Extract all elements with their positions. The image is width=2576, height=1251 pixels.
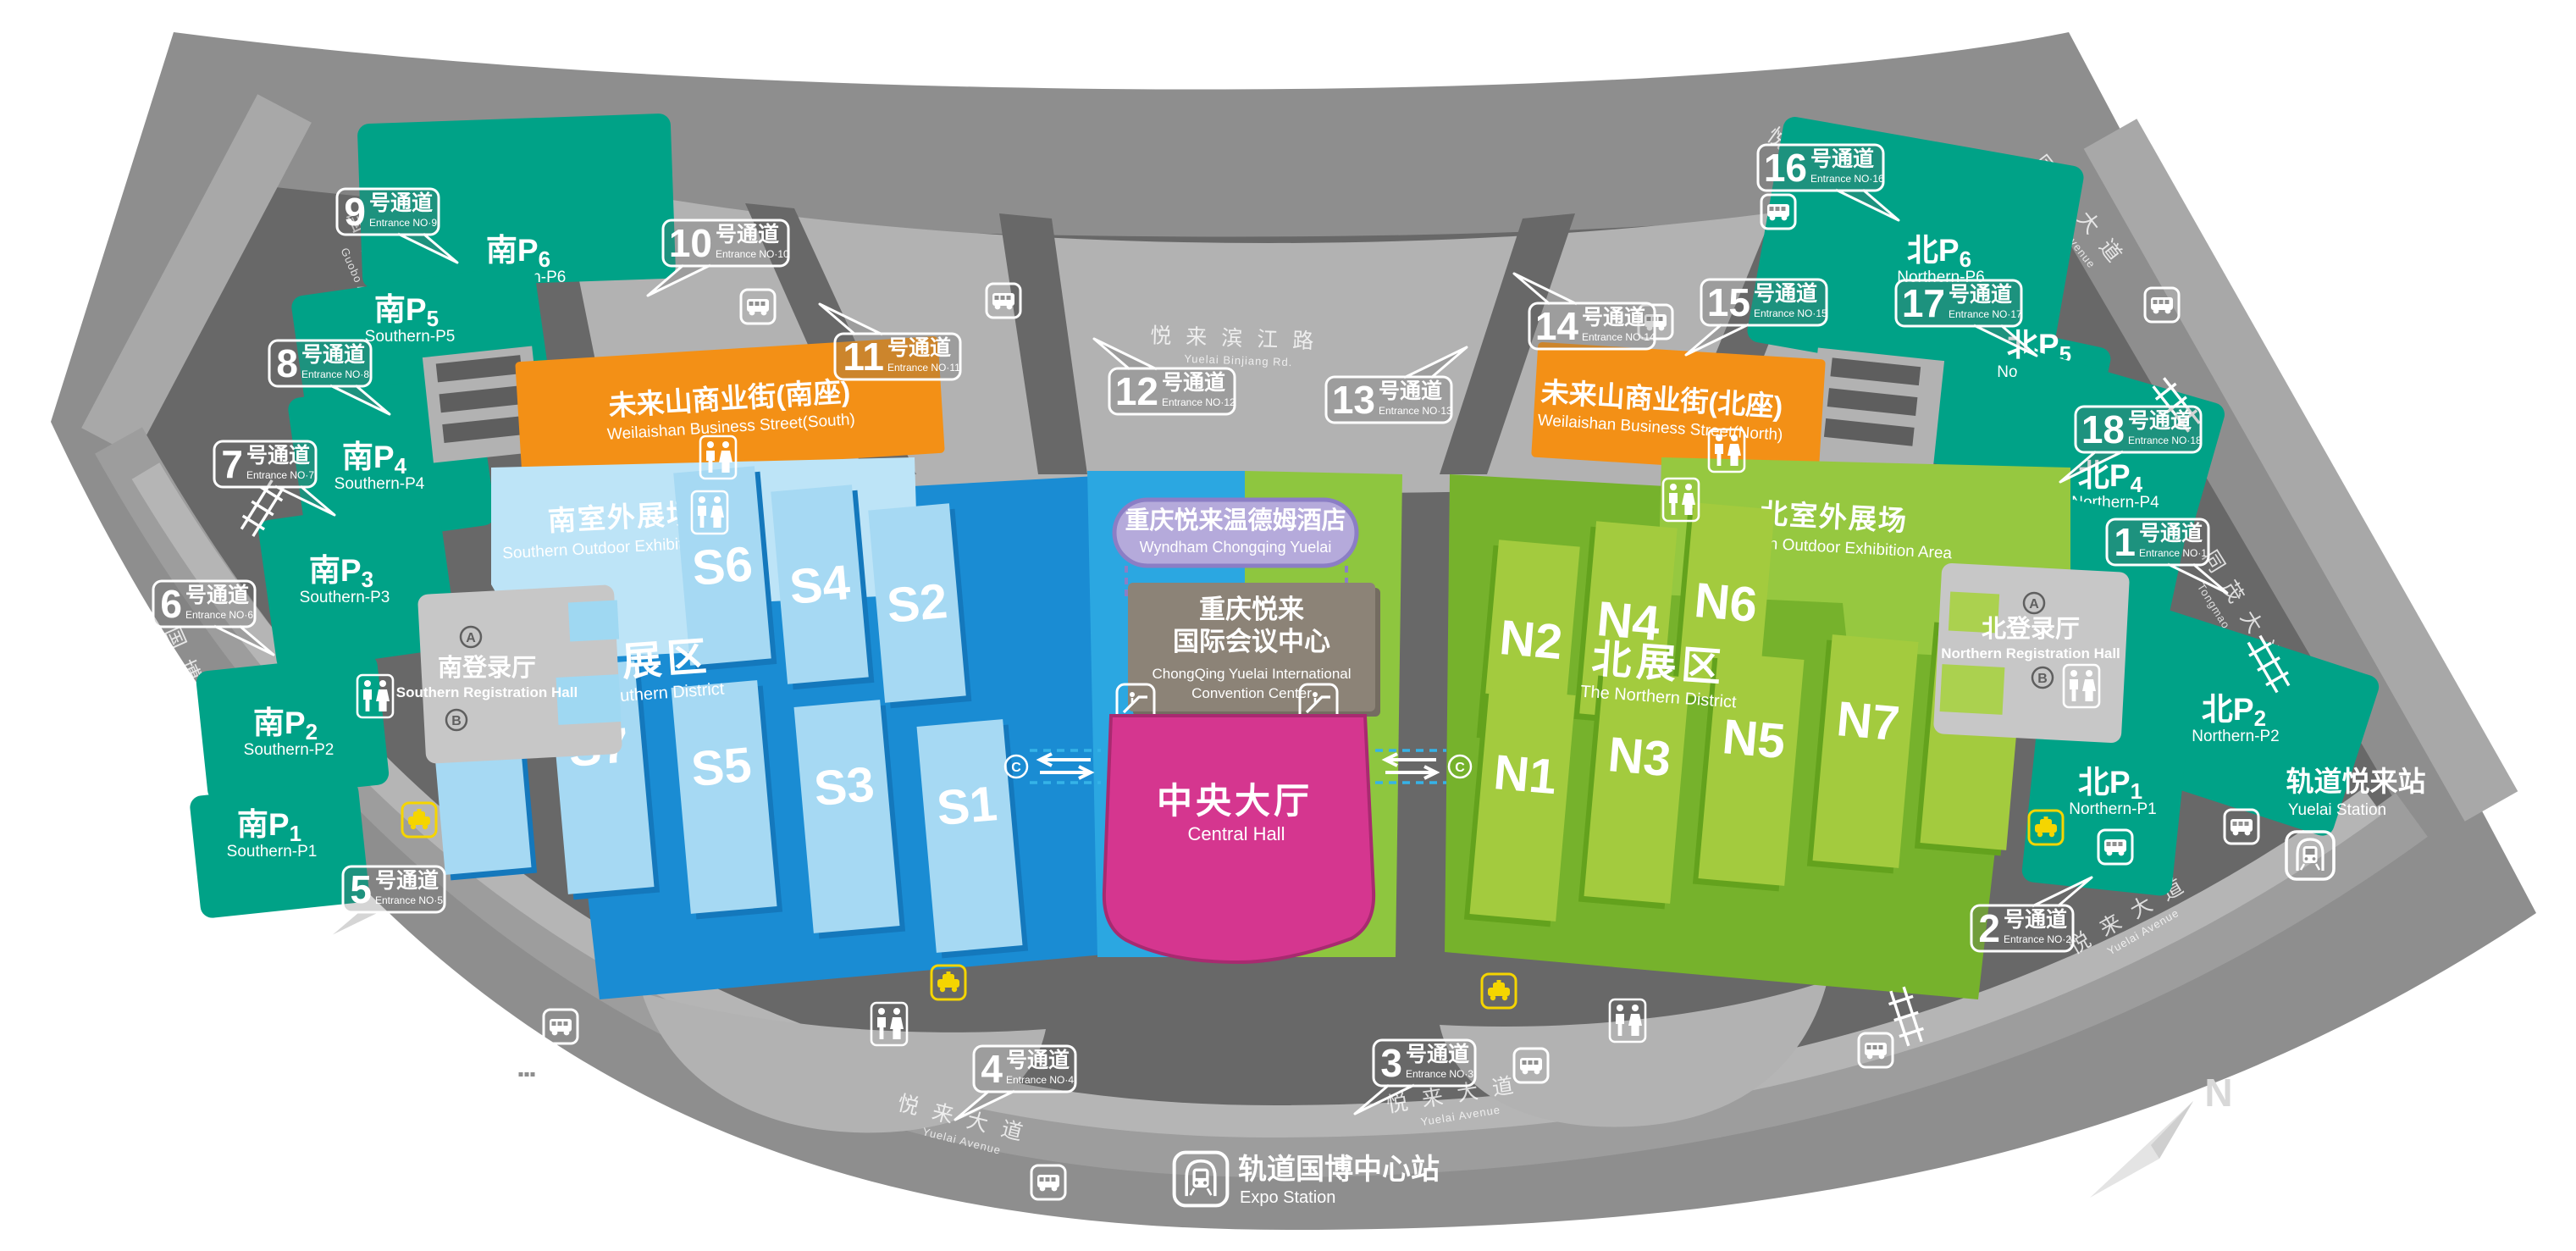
svg-text:号通道: 号通道 <box>716 222 779 246</box>
svg-text:Entrance NO·7: Entrance NO·7 <box>246 469 314 481</box>
svg-text:轨道国博中心站: 轨道国博中心站 <box>1238 1154 1440 1186</box>
svg-text:号通道: 号通道 <box>2139 521 2203 545</box>
hall-s4: S4 <box>771 484 874 690</box>
svg-text:3: 3 <box>1380 1041 1402 1085</box>
svg-text:号通道: 号通道 <box>1810 147 1874 171</box>
svg-text:ChongQing Yuelai International: ChongQing Yuelai International <box>1152 666 1351 682</box>
south-registration-label-en: Southern Registration Hall <box>396 684 578 700</box>
svg-text:国际会议中心: 国际会议中心 <box>1173 627 1330 656</box>
hotel-label-en: Wyndham Chongqing Yuelai <box>1140 539 1332 556</box>
svg-text:Entrance NO·15: Entrance NO·15 <box>1754 307 1827 319</box>
svg-text:Entrance NO·9: Entrance NO·9 <box>369 217 437 229</box>
svg-text:B: B <box>451 714 462 728</box>
svg-text:Entrance NO·16: Entrance NO·16 <box>1810 173 1884 185</box>
svg-text:Expo Station: Expo Station <box>1240 1188 1335 1207</box>
svg-text:N6: N6 <box>1692 573 1760 633</box>
svg-text:Entrance NO·13: Entrance NO·13 <box>1379 405 1452 417</box>
svg-text:Southern-P5: Southern-P5 <box>365 328 456 346</box>
svg-text:Entrance NO·4: Entrance NO·4 <box>1006 1074 1074 1086</box>
svg-text:Entrance NO·11: Entrance NO·11 <box>887 362 960 374</box>
hotel-label: 重庆悦来温德姆酒店 <box>1125 506 1346 534</box>
svg-text:号通道: 号通道 <box>369 191 433 215</box>
central-hall-label: 中央大厅 <box>1157 781 1313 821</box>
compass-arrow-shade <box>2151 1101 2193 1159</box>
svg-text:7: 7 <box>221 442 243 486</box>
parking-north-p1: 北P1 Northern-P1 <box>2020 719 2187 897</box>
svg-text:号通道: 号通道 <box>1949 282 2012 307</box>
svg-text:Entrance NO·1: Entrance NO·1 <box>2139 547 2207 559</box>
svg-text:Southern-P1: Southern-P1 <box>227 843 318 861</box>
svg-text:号通道: 号通道 <box>887 335 951 360</box>
svg-text:11: 11 <box>843 335 884 379</box>
svg-text:Entrance NO·8: Entrance NO·8 <box>301 368 369 380</box>
north-district-label: 北展区 <box>1590 636 1727 690</box>
svg-text:N7: N7 <box>1834 691 1902 751</box>
svg-text:S6: S6 <box>690 536 755 596</box>
svg-text:S1: S1 <box>935 776 999 836</box>
north-registration-label-en: Northern Registration Hall <box>1941 645 2120 661</box>
compass-n-label: N <box>2204 1071 2232 1115</box>
svg-text:号通道: 号通道 <box>1162 370 1225 395</box>
svg-text:A: A <box>466 631 476 645</box>
svg-text:N5: N5 <box>1720 709 1788 769</box>
svg-text:Yuelai Station: Yuelai Station <box>2288 801 2386 819</box>
svg-text:轨道悦来站: 轨道悦来站 <box>2286 766 2426 797</box>
svg-text:13: 13 <box>1332 378 1375 422</box>
svg-text:Southern-P4: Southern-P4 <box>334 475 425 493</box>
svg-text:Entrance NO·5: Entrance NO·5 <box>375 894 443 906</box>
north-registration-label: 北登录厅 <box>1982 615 2080 643</box>
svg-text:重庆悦来: 重庆悦来 <box>1199 595 1304 624</box>
svg-text:号通道: 号通道 <box>1582 305 1645 329</box>
svg-text:号通道: 号通道 <box>1379 379 1442 403</box>
svg-text:Northern-P2: Northern-P2 <box>2192 728 2280 745</box>
svg-text:S3: S3 <box>812 756 876 816</box>
svg-text:S2: S2 <box>885 573 949 634</box>
svg-text:号通道: 号通道 <box>2128 408 2192 433</box>
svg-text:4: 4 <box>981 1047 1003 1091</box>
svg-text:号通道: 号通道 <box>1006 1048 1070 1072</box>
svg-text:Southern-P3: Southern-P3 <box>300 589 390 606</box>
svg-text:C: C <box>1011 761 1021 775</box>
svg-text:Entrance NO·17: Entrance NO·17 <box>1949 308 2022 320</box>
expo-center-map: 悦来滨江路 Yuelai Binjiang Rd. 悦来滨江路 Yuelai B… <box>0 0 2576 1251</box>
south-registration-label: 南登录厅 <box>438 654 536 682</box>
svg-text:Entrance NO·14: Entrance NO·14 <box>1582 331 1656 343</box>
svg-text:Entrance NO·12: Entrance NO·12 <box>1162 396 1235 408</box>
svg-text:N2: N2 <box>1497 610 1565 670</box>
svg-text:Entrance NO·6: Entrance NO·6 <box>185 609 253 621</box>
svg-text:Entrance NO·2: Entrance NO·2 <box>2004 933 2071 945</box>
svg-text:号通道: 号通道 <box>1406 1042 1469 1066</box>
svg-text:号通道: 号通道 <box>1754 281 1817 306</box>
svg-text:Entrance NO·10: Entrance NO·10 <box>716 248 789 260</box>
svg-text:号通道: 号通道 <box>375 868 439 893</box>
svg-text:C: C <box>1455 761 1465 775</box>
north-registration: A B 北登录厅 Northern Registration Hall <box>1933 562 2130 743</box>
svg-text:14: 14 <box>1535 304 1579 348</box>
convention-center: 重庆悦来 国际会议中心 ChongQing Yuelai Internation… <box>1128 583 1380 717</box>
svg-text:号通道: 号通道 <box>185 583 249 607</box>
svg-text:1: 1 <box>2114 520 2136 564</box>
svg-text:S4: S4 <box>788 555 852 615</box>
svg-text:10: 10 <box>669 221 712 265</box>
svg-text:号通道: 号通道 <box>301 342 365 367</box>
svg-text:S5: S5 <box>689 737 754 797</box>
central-hall-label-en: Central Hall <box>1188 823 1285 844</box>
map-canvas: 悦来滨江路 Yuelai Binjiang Rd. 悦来滨江路 Yuelai B… <box>0 0 2576 1251</box>
svg-text:B: B <box>2037 672 2048 686</box>
svg-text:号通道: 号通道 <box>2004 907 2067 932</box>
svg-text:18: 18 <box>2081 407 2125 451</box>
svg-text:16: 16 <box>1764 146 1807 190</box>
svg-text:Southern-P2: Southern-P2 <box>244 741 334 759</box>
svg-text:Entrance NO·3: Entrance NO·3 <box>1406 1068 1473 1080</box>
svg-text:Convention Center: Convention Center <box>1191 685 1312 701</box>
svg-text:N3: N3 <box>1606 727 1673 787</box>
svg-text:5: 5 <box>350 867 372 911</box>
svg-text:8: 8 <box>276 341 298 385</box>
svg-text:2: 2 <box>1978 906 2000 950</box>
svg-text:12: 12 <box>1115 369 1158 413</box>
south-registration: A B 南登录厅 Southern Registration Hall <box>396 584 622 764</box>
svg-text:9: 9 <box>344 190 366 234</box>
svg-text:号通道: 号通道 <box>246 443 310 468</box>
svg-text:15: 15 <box>1707 280 1750 324</box>
hall-s2: S2 <box>868 503 971 709</box>
svg-text:6: 6 <box>160 582 182 626</box>
svg-text:Entrance NO·18: Entrance NO·18 <box>2128 435 2202 446</box>
bus-icon <box>511 1060 544 1094</box>
svg-text:17: 17 <box>1902 281 1945 325</box>
svg-text:Northern-P1: Northern-P1 <box>2069 800 2157 818</box>
svg-text:N1: N1 <box>1491 745 1559 805</box>
svg-text:A: A <box>2029 597 2039 612</box>
